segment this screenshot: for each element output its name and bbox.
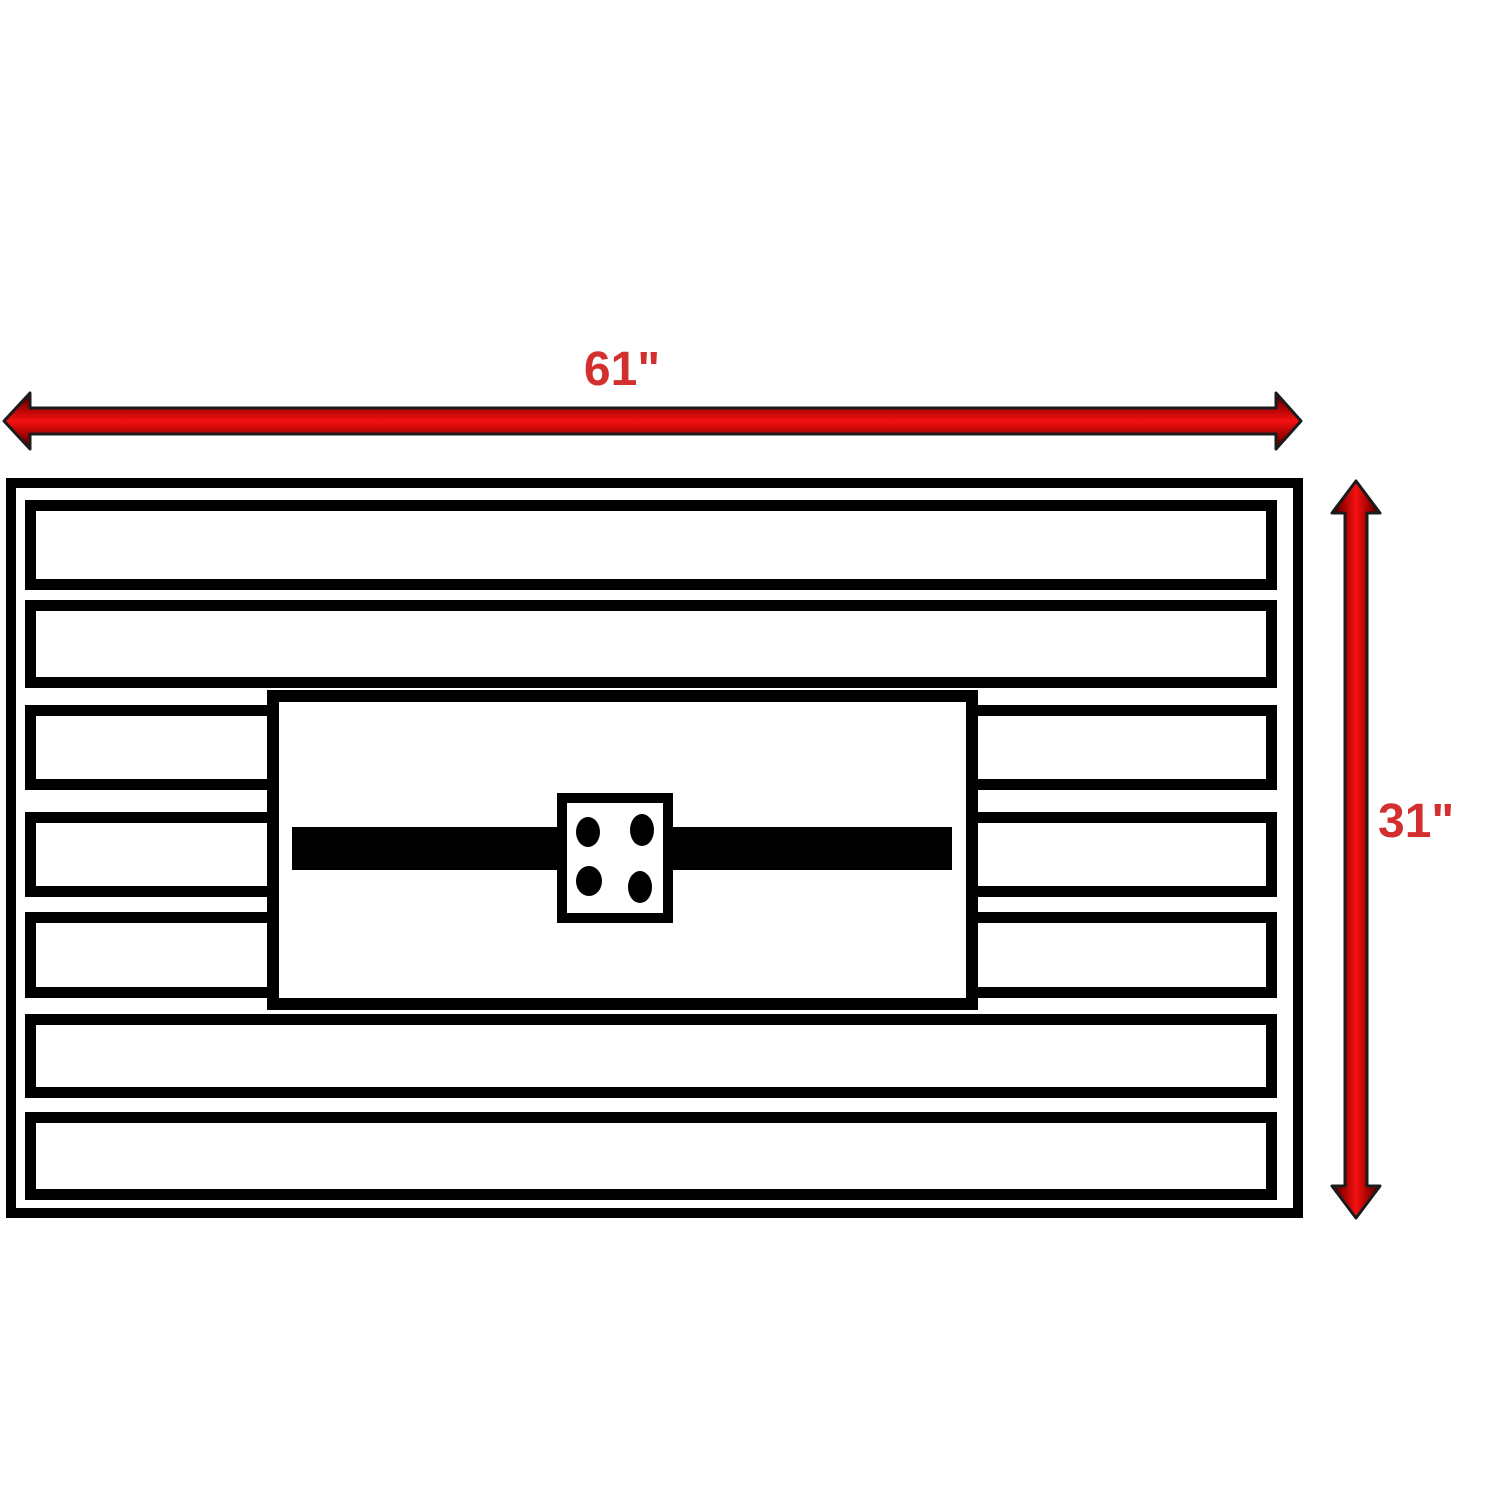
slat-6 xyxy=(31,1020,1272,1093)
height-dimension-arrow-icon xyxy=(1332,481,1380,1218)
burner-hole-bottom-right xyxy=(628,871,652,903)
diagram-canvas: 61" 31" xyxy=(0,0,1500,1500)
burner-hole-bottom-left xyxy=(576,866,602,896)
burner-hole-top-right xyxy=(630,814,654,846)
width-dimension-arrow-icon xyxy=(4,393,1301,449)
burner-plate xyxy=(562,798,668,918)
dimension-drawing xyxy=(0,0,1500,1500)
slat-7 xyxy=(31,1118,1272,1195)
burner-hole-top-left xyxy=(576,817,600,847)
slat-2 xyxy=(31,606,1272,683)
slat-1 xyxy=(31,506,1272,585)
